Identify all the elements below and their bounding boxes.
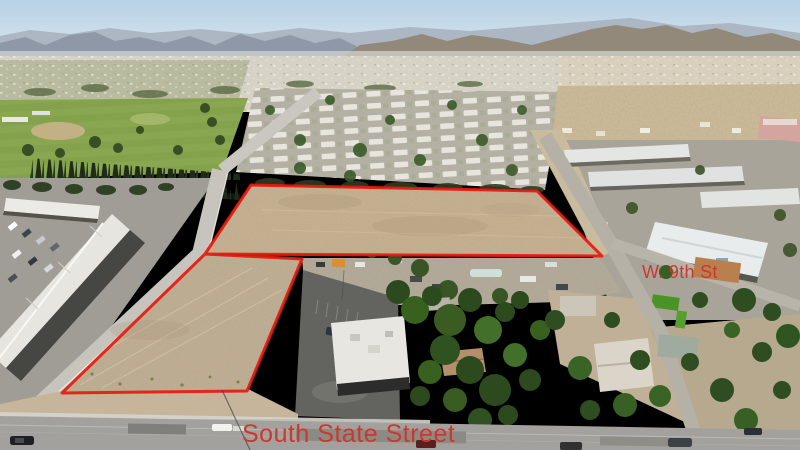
mobile-home-park [236, 88, 562, 194]
street-label-main: South State Street [242, 420, 455, 448]
street-label-cross: W. 9th St [642, 262, 718, 282]
aerial-photo: South State Street W. 9th St [0, 0, 800, 450]
tanker-trailer [470, 269, 502, 277]
commercial-building [331, 316, 410, 396]
